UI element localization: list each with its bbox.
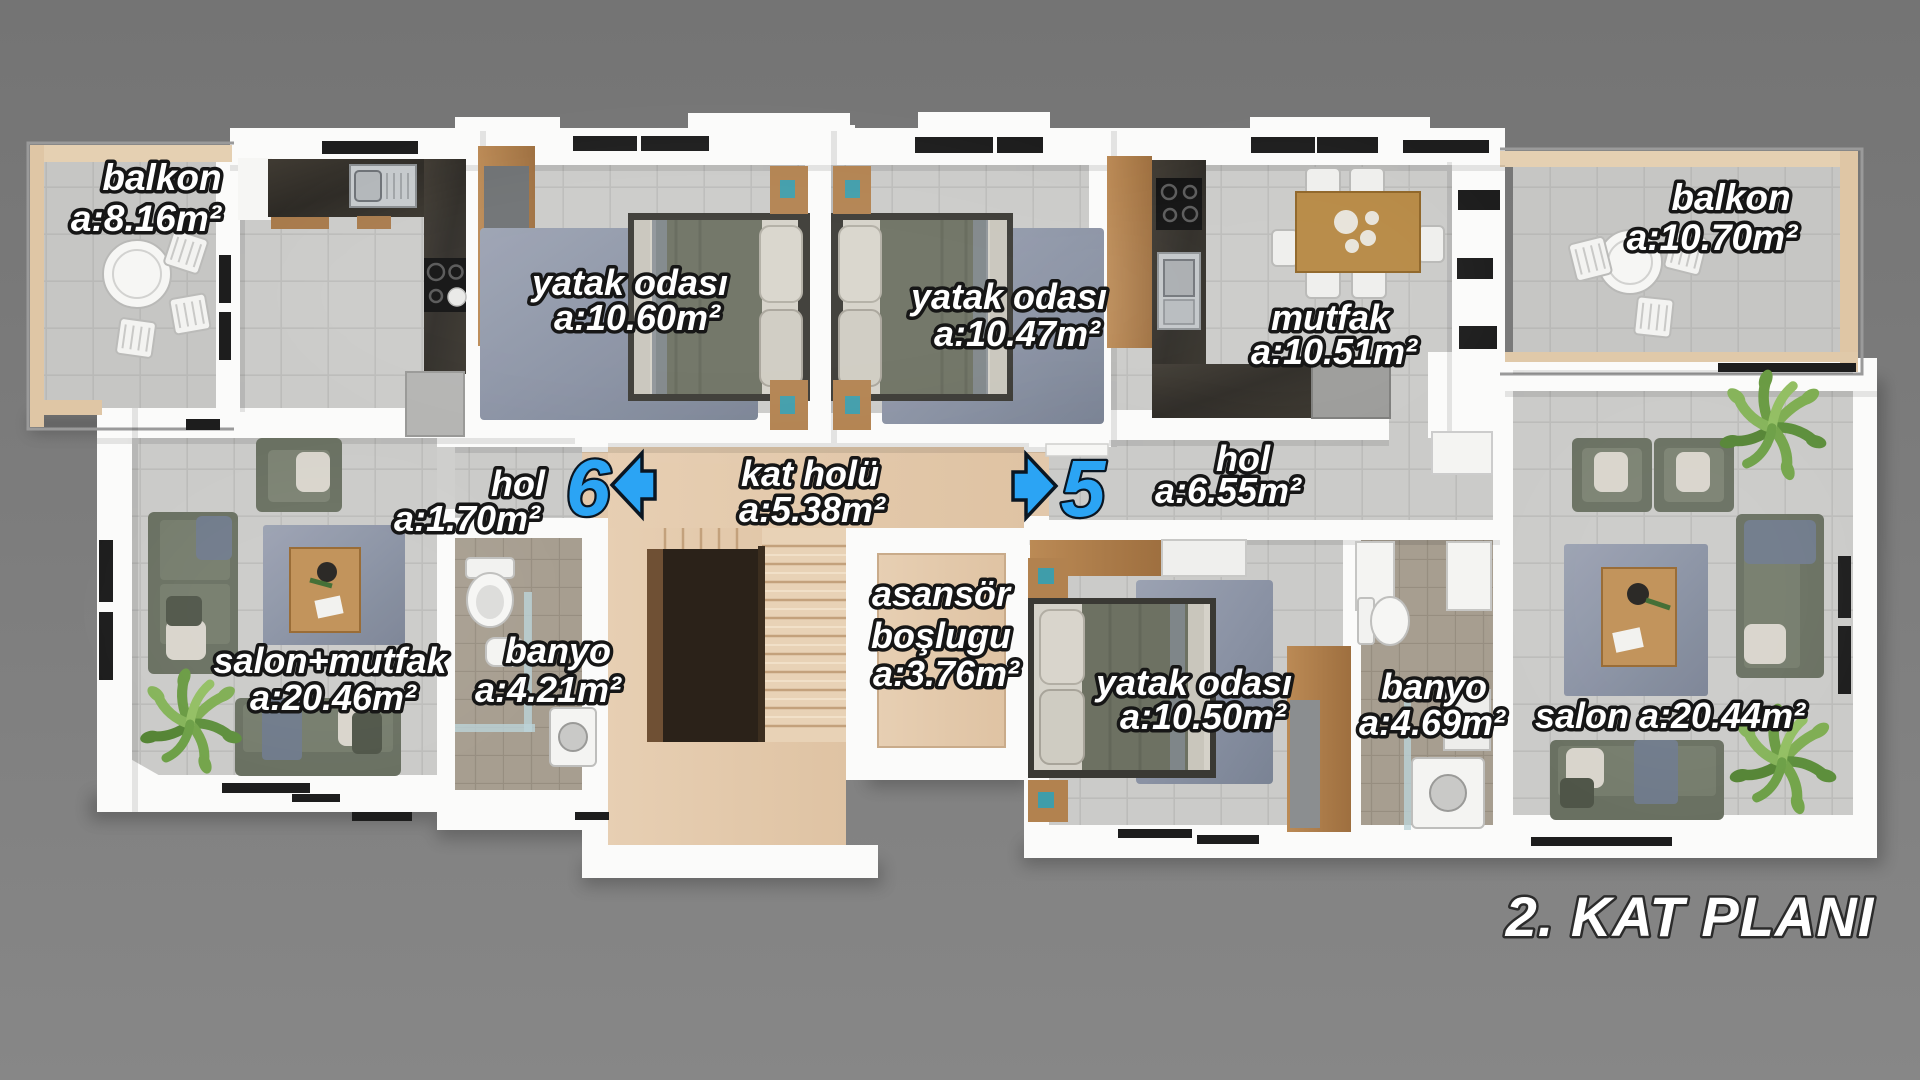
svg-text:banyo: banyo bbox=[1381, 666, 1487, 707]
svg-text:a:10.60m²: a:10.60m² bbox=[554, 297, 721, 338]
svg-text:asansör: asansör bbox=[872, 573, 1012, 614]
svg-text:a:3.76m²: a:3.76m² bbox=[873, 653, 1020, 694]
svg-text:6: 6 bbox=[566, 443, 611, 532]
svg-text:a:4.69m²: a:4.69m² bbox=[1359, 702, 1506, 743]
svg-text:a:5.38m²: a:5.38m² bbox=[739, 489, 886, 530]
svg-text:banyo: banyo bbox=[505, 630, 611, 671]
svg-text:a:10.47m²: a:10.47m² bbox=[934, 313, 1101, 354]
svg-text:a:10.50m²: a:10.50m² bbox=[1120, 696, 1287, 737]
svg-text:balkon: balkon bbox=[102, 157, 221, 198]
svg-text:balkon: balkon bbox=[1671, 177, 1790, 218]
svg-text:a:6.55m²: a:6.55m² bbox=[1155, 470, 1302, 511]
svg-text:a:1.70m²: a:1.70m² bbox=[394, 498, 541, 539]
svg-text:a:8.16m²: a:8.16m² bbox=[71, 198, 223, 239]
svg-text:salon a:20.44m²: salon a:20.44m² bbox=[1535, 695, 1806, 736]
svg-text:a:10.70m²: a:10.70m² bbox=[1627, 217, 1799, 258]
svg-text:a:10.51m²: a:10.51m² bbox=[1251, 331, 1418, 372]
svg-text:2. KAT PLANI: 2. KAT PLANI bbox=[1505, 885, 1875, 948]
svg-text:boşlugu: boşlugu bbox=[871, 615, 1011, 656]
svg-text:a:4.21m²: a:4.21m² bbox=[475, 669, 622, 710]
svg-text:a:20.46m²: a:20.46m² bbox=[250, 677, 417, 718]
svg-text:5: 5 bbox=[1061, 444, 1107, 533]
svg-text:kat holü: kat holü bbox=[741, 453, 879, 494]
svg-text:salon+mutfak: salon+mutfak bbox=[213, 640, 448, 681]
svg-text:yatak odası: yatak odası bbox=[909, 276, 1107, 317]
